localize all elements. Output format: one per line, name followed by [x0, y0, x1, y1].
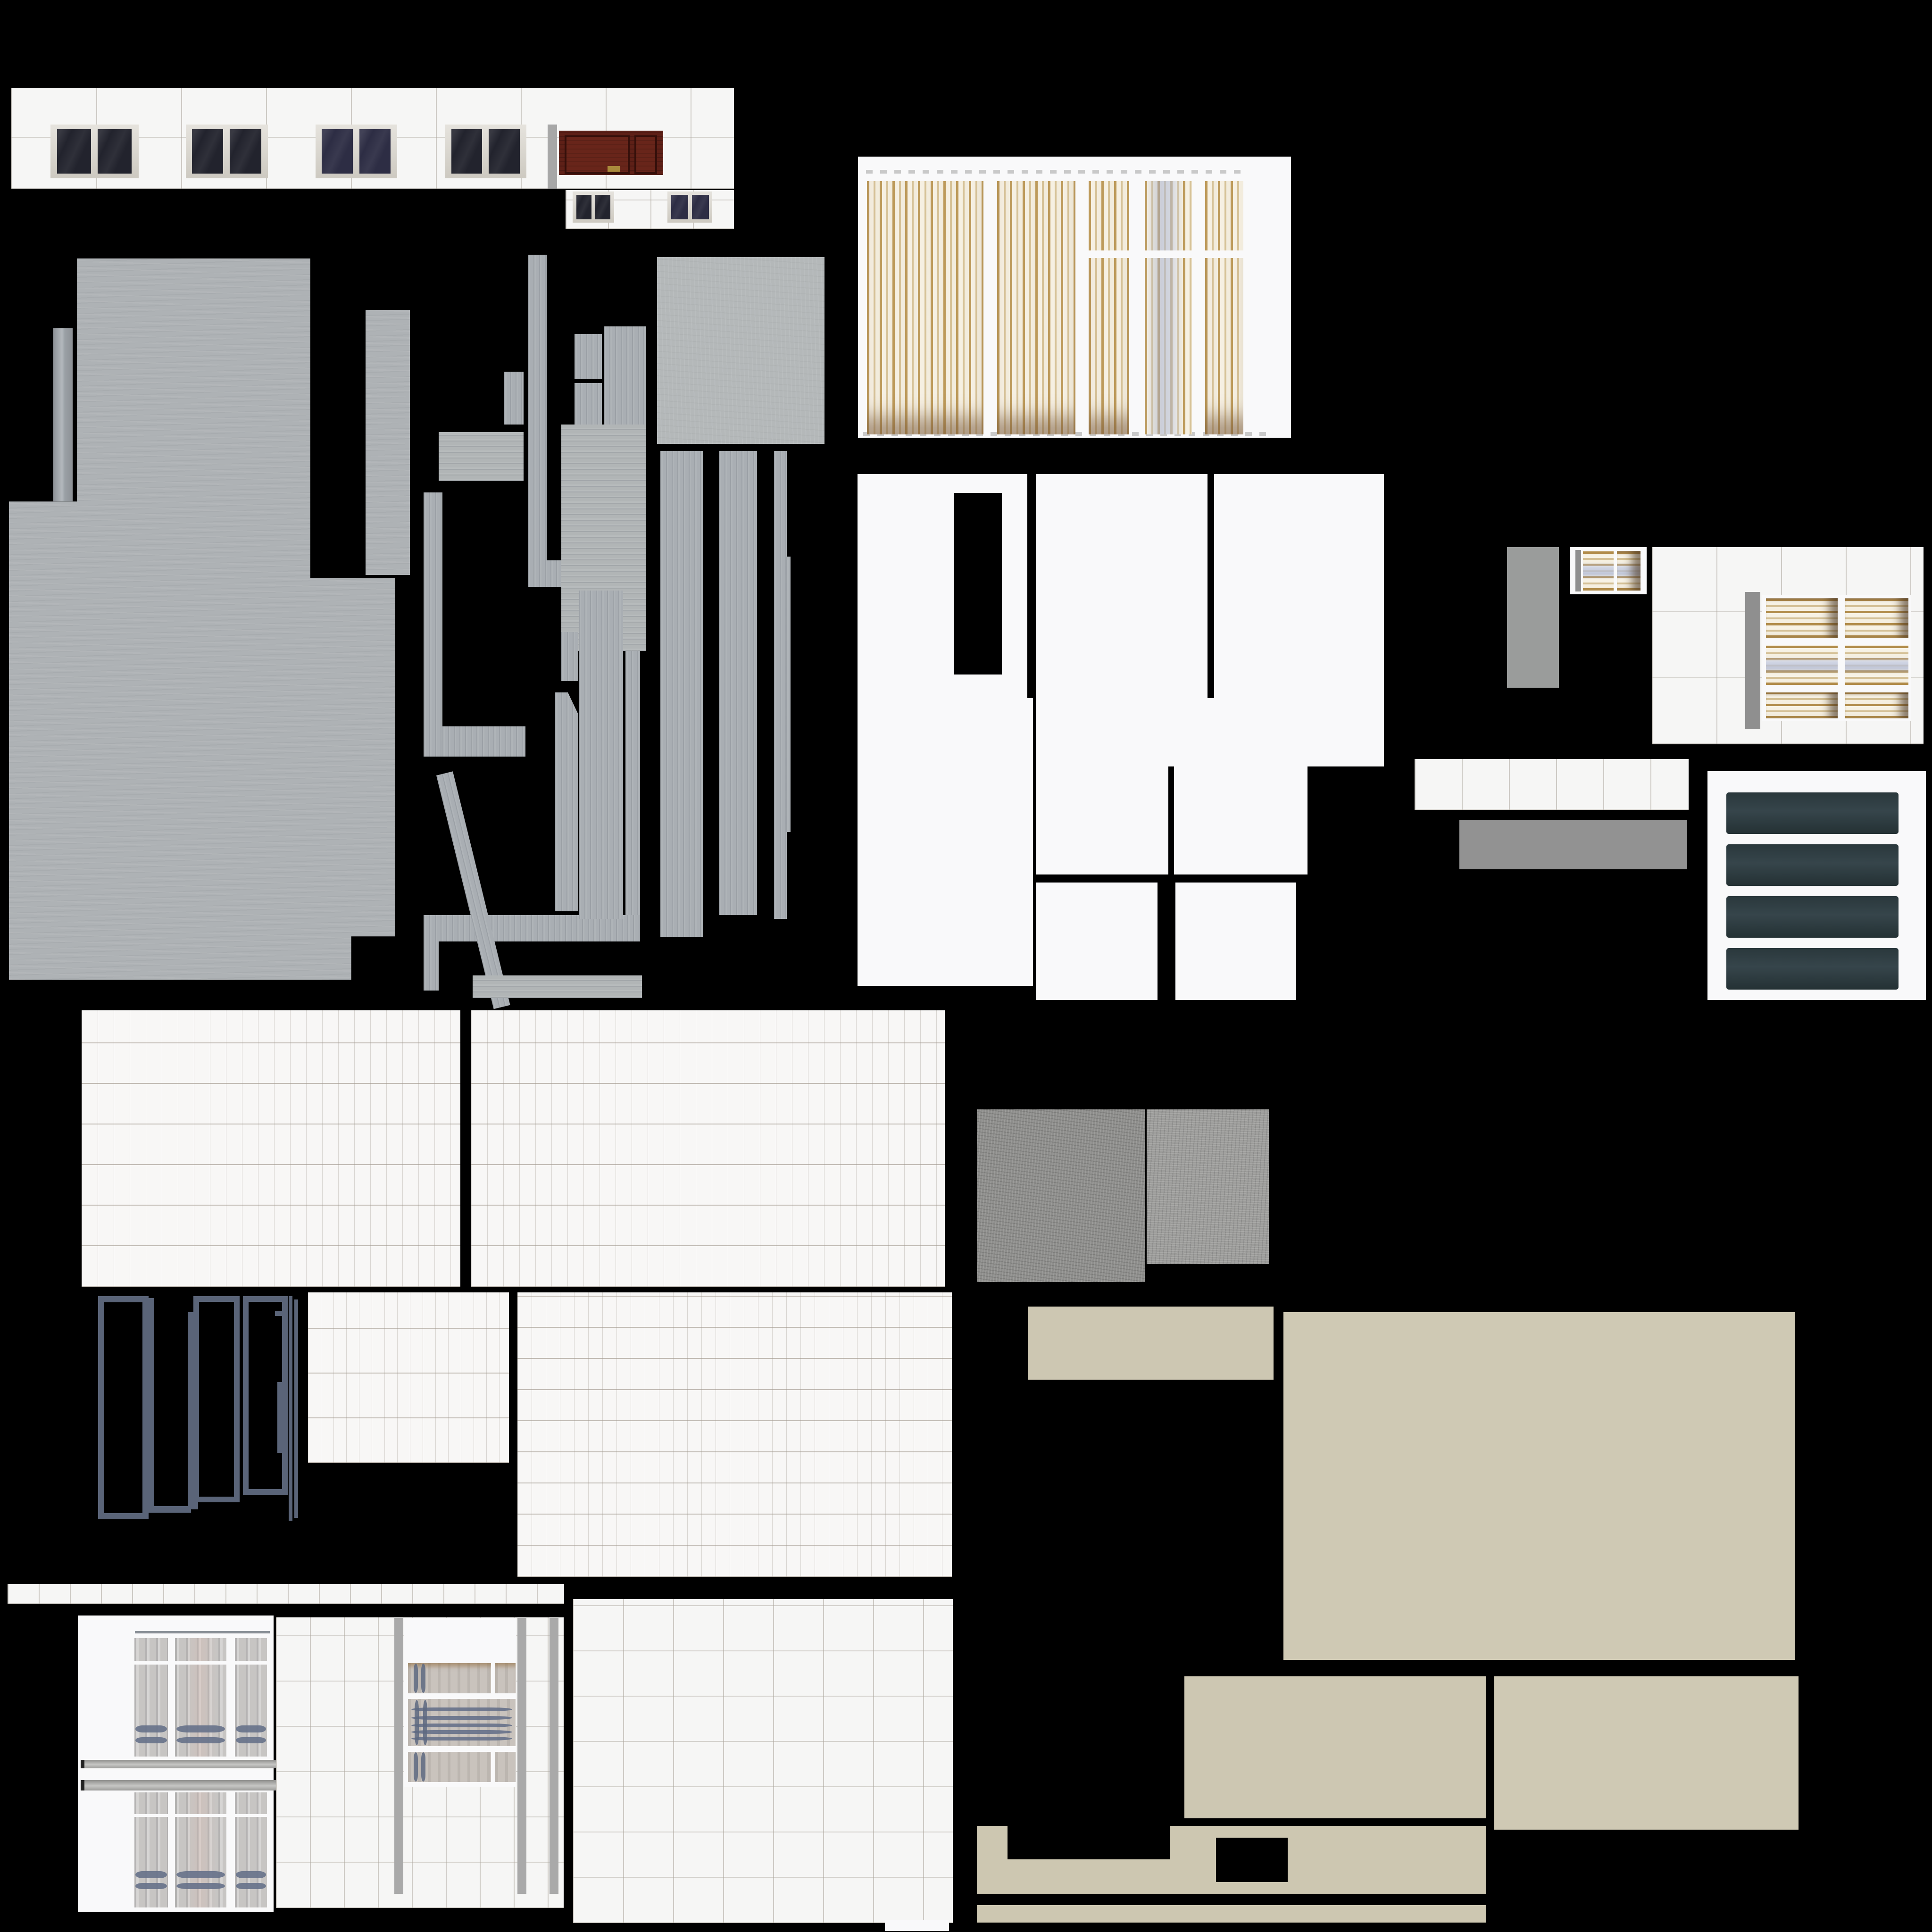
facade-upper-main-3	[235, 1665, 267, 1757]
small-bar-f	[439, 432, 524, 481]
band-window-1-glass-left	[57, 129, 91, 174]
beige-bracket-arm	[977, 1826, 1008, 1894]
band-window-1-glass-right	[98, 129, 132, 174]
facade-upper-main-3-stripe-0	[236, 1725, 266, 1732]
facade-lower-main-2-stripe-0	[176, 1871, 225, 1878]
facade-upper-transom-3	[235, 1638, 267, 1661]
frame-strip-vertical-a	[528, 255, 547, 568]
gray-bar-horizontal	[1459, 820, 1687, 869]
band-window-3-glass-right	[359, 129, 391, 174]
frame-strip-hook-a	[424, 941, 439, 991]
strip-window-1-glass-left	[576, 195, 591, 219]
frame-strip-bottom-a	[424, 915, 640, 941]
facade-mid-pane-top-vstripe-0	[414, 1664, 418, 1692]
strip-window-1-glass-right	[595, 195, 610, 219]
facade-mid-pane-top-vstripe-1	[421, 1664, 425, 1692]
facade-upper-main-3-stripe-1	[236, 1737, 266, 1743]
facade-lower-main-2-stripe-1	[176, 1883, 225, 1889]
band-window-3-glass-left	[322, 129, 353, 174]
facade-upper-main-2-stripe-0	[176, 1725, 225, 1732]
facade-mid-pane-bottom-vstripe-0	[414, 1752, 418, 1781]
facade-lower-main-3	[235, 1817, 267, 1907]
facade-lower-main-2	[175, 1817, 226, 1907]
beige-rect-large	[1283, 1312, 1795, 1660]
facade-mid-pane-bottom-right	[495, 1752, 516, 1782]
band-window-4-glass-left	[451, 129, 482, 174]
facade-mid-bar-2	[517, 1618, 526, 1894]
facade-upper-main-1-stripe-1	[135, 1737, 167, 1743]
facade-mid-pane-middle-vstripe-0	[415, 1700, 419, 1745]
white-panel-5	[1036, 698, 1168, 874]
tile-bar-long	[8, 1584, 564, 1604]
beige-rect-lower-right	[1494, 1676, 1799, 1830]
window-thumb-bar	[1575, 550, 1581, 591]
facade-lower-transom-1	[134, 1792, 168, 1814]
tile-window-pane-r1c1	[1766, 598, 1838, 638]
small-square-e	[504, 372, 524, 425]
tile-window-pane-r2c1	[1766, 645, 1838, 685]
gray-rect-right	[1507, 547, 1559, 688]
facade-upper-main-2-stripe-1	[176, 1737, 225, 1743]
frame-line-5b	[294, 1299, 298, 1518]
band-window-2-glass-right	[230, 129, 261, 174]
lean-strip-g-foot	[442, 726, 525, 757]
facade-upper-main-1	[134, 1665, 168, 1757]
white-panel-4	[858, 698, 1033, 986]
beige-rect-lower-left	[1184, 1676, 1486, 1818]
facade-lower-main-1-stripe-1	[135, 1883, 167, 1889]
facade-lower-main-3-stripe-1	[236, 1883, 266, 1889]
frame-bar-2b	[148, 1506, 191, 1513]
column-strip-1	[660, 451, 703, 937]
frame-outline-1	[98, 1296, 149, 1519]
diagonal-strip-g	[436, 771, 510, 1009]
curtain-pane-bottom-5	[1205, 258, 1243, 434]
slat-3	[1726, 896, 1899, 938]
lean-strip-g	[424, 492, 442, 757]
brushed-bar-left	[53, 328, 73, 501]
slat-2	[1726, 844, 1899, 886]
frame-bar-2a	[148, 1298, 154, 1513]
beige-strip-bottom	[977, 1905, 1486, 1923]
facade-upper-transom-1	[134, 1638, 168, 1661]
bottom-bar-j	[473, 975, 642, 998]
facade-mid-bar-1	[394, 1618, 403, 1894]
facade-mid-pane-top-right	[495, 1663, 516, 1693]
curtain-pane-bottom-3	[1089, 258, 1129, 434]
door-knob	[608, 166, 620, 172]
frame-handle-pill	[275, 1311, 283, 1316]
column-sliver-4	[786, 557, 791, 832]
facade-mid-pane-bottom	[408, 1752, 491, 1782]
curtain-pane-top-3	[1089, 181, 1129, 250]
beige-bracket-hole	[1216, 1838, 1288, 1882]
beige-bar-top	[1028, 1307, 1274, 1380]
tile-block-tab	[885, 1920, 949, 1931]
wood-door-rotated-panel-0	[565, 135, 630, 174]
tile-window-pane-r1c2	[1845, 598, 1908, 638]
small-rect-i	[561, 632, 578, 681]
frame-handle-bar-1	[277, 1382, 282, 1453]
facade-mid-pane-top	[408, 1663, 491, 1693]
concrete-block-k	[657, 257, 824, 444]
column-strip-2	[719, 451, 757, 915]
fur-square-light	[1147, 1109, 1269, 1264]
tile-window-pane-r3c1	[1766, 692, 1838, 718]
tile-block-bottom-right	[573, 1599, 953, 1923]
tall-rect-h	[579, 591, 623, 919]
tile-strip-horizontal	[1415, 759, 1689, 810]
strip-window-2-glass-right	[692, 195, 709, 219]
band-window-4-glass-right	[489, 129, 520, 174]
facade-upper-main-2	[175, 1665, 226, 1757]
band-window-2-glass-left	[192, 129, 223, 174]
facade-lower-main-1	[134, 1817, 168, 1907]
frame-line-5a	[289, 1296, 292, 1521]
white-panel-7	[1036, 883, 1158, 1000]
frame-outline-3	[193, 1296, 240, 1502]
tile-window-pane-r3c2	[1845, 692, 1908, 718]
band-gray-divider	[548, 125, 557, 189]
small-square-2	[575, 383, 602, 425]
slat-4	[1726, 948, 1899, 990]
curtain-pane-large-2	[997, 181, 1075, 434]
curtain-pane-large-1	[867, 181, 983, 434]
facade-upper-transom-2	[175, 1638, 226, 1661]
column-strip-3	[774, 451, 787, 919]
fur-square-dark	[977, 1109, 1145, 1282]
window-thumb-pane-right	[1617, 551, 1641, 591]
facade-mid-bar-3	[550, 1618, 558, 1894]
grid-panel-b	[471, 1010, 945, 1287]
wood-door-rotated-panel-1	[634, 135, 657, 174]
curtain-panel-tickrow-top	[866, 170, 1243, 174]
white-panel-8	[1175, 883, 1296, 1000]
white-panel-6	[1174, 698, 1307, 874]
facade-lower-transom-3	[235, 1792, 267, 1814]
facade-mid-pane-middle	[408, 1699, 516, 1746]
curtain-pane-top-5	[1205, 181, 1243, 250]
texture-atlas-sheet	[0, 0, 1932, 1932]
grid-panel-c	[308, 1292, 509, 1463]
frame-handle-bar-2	[284, 1399, 288, 1457]
grid-panel-d	[517, 1292, 952, 1577]
strip-window-2-glass-left	[671, 195, 688, 219]
concrete-strip-tall	[366, 310, 410, 575]
window-thumb-pane-left	[1583, 551, 1614, 591]
pentagon-rect-i	[555, 692, 578, 911]
curtain-pane-bottom-4	[1145, 258, 1192, 434]
white-panel-1-hole	[954, 493, 1002, 675]
slat-1	[1726, 792, 1899, 834]
facade-mid-pane-bottom-vstripe-1	[421, 1752, 425, 1781]
facade-left-headline	[135, 1631, 270, 1633]
facade-lower-transom-2	[175, 1792, 226, 1814]
tile-panel-gray-bar	[1745, 592, 1760, 729]
facade-lower-main-3-stripe-0	[236, 1871, 266, 1878]
small-square-1	[575, 334, 602, 379]
tile-window-pane-r2c2	[1845, 645, 1908, 685]
small-rect-c	[604, 326, 646, 425]
facade-upper-main-1-stripe-0	[135, 1725, 167, 1732]
facade-mid-pane-middle-vstripe-1	[423, 1700, 427, 1745]
curtain-pane-top-4	[1145, 181, 1192, 250]
facade-lower-main-1-stripe-0	[135, 1871, 167, 1878]
grid-panel-a	[82, 1010, 460, 1287]
